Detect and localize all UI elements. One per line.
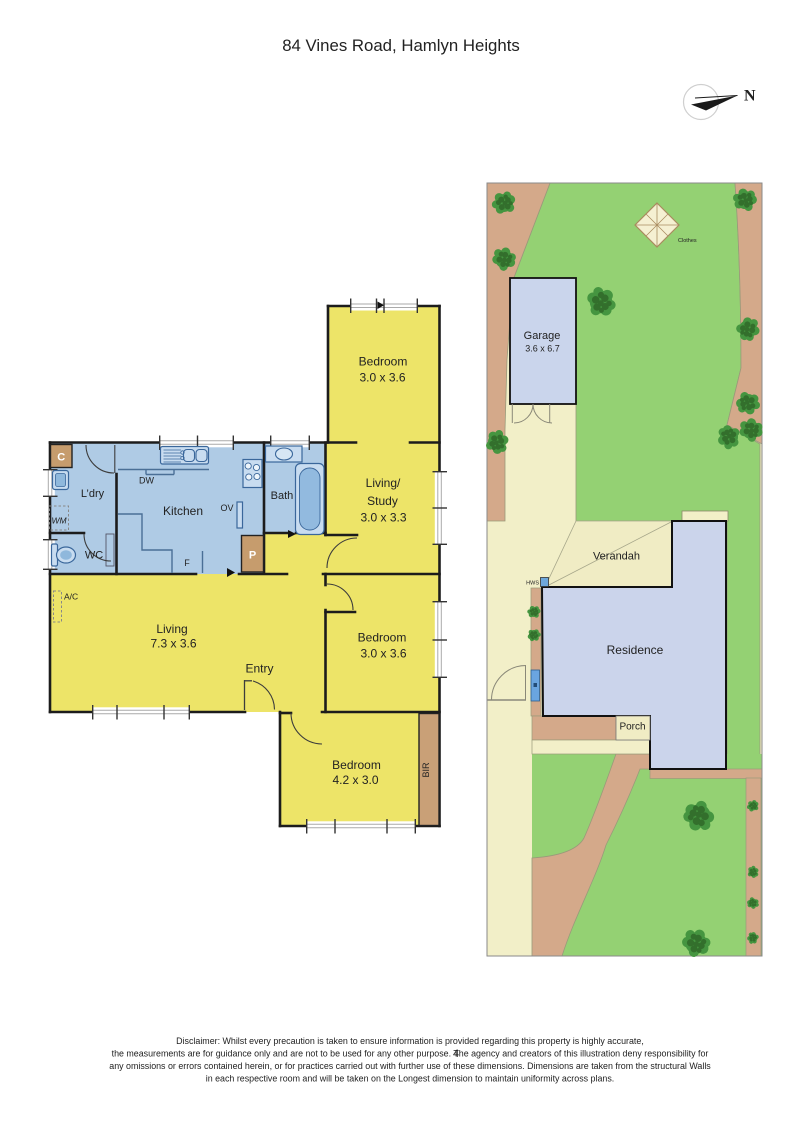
svg-text:L’dry: L’dry [81, 488, 105, 500]
svg-text:Bath: Bath [271, 490, 294, 502]
svg-text:C: C [57, 452, 65, 464]
svg-text:N: N [744, 88, 756, 105]
svg-text:WM: WM [51, 516, 67, 526]
svg-text:any omissions or errors contai: any omissions or errors contained herein… [109, 1061, 711, 1071]
svg-text:3.0 x 3.6: 3.0 x 3.6 [360, 647, 406, 661]
svg-text:BIR: BIR [421, 762, 431, 778]
svg-text:P: P [249, 550, 256, 562]
svg-text:Living: Living [156, 622, 187, 636]
svg-text:the measurements are for guida: the measurements are for guidance only a… [112, 1049, 709, 1059]
svg-text:WC: WC [85, 550, 103, 562]
svg-text:Verandah: Verandah [593, 551, 640, 563]
svg-text:Disclaimer: Whilst every preca: Disclaimer: Whilst every precaution is t… [176, 1036, 644, 1046]
svg-text:7.3 x 3.6: 7.3 x 3.6 [150, 637, 196, 651]
svg-text:A/C: A/C [64, 592, 78, 602]
svg-text:Kitchen: Kitchen [163, 504, 203, 518]
svg-text:Living/: Living/ [366, 476, 401, 490]
svg-text:Bedroom: Bedroom [332, 758, 381, 772]
svg-text:Entry: Entry [245, 662, 273, 676]
svg-text:4.2 x 3.0: 4.2 x 3.0 [332, 773, 378, 787]
svg-text:3.0 x 3.6: 3.0 x 3.6 [359, 371, 405, 385]
svg-text:3.0 x 3.3: 3.0 x 3.3 [360, 511, 406, 525]
svg-text:in each respective room and wi: in each respective room and will be take… [206, 1074, 614, 1084]
svg-text:F: F [184, 558, 190, 568]
svg-text:DW: DW [139, 476, 154, 486]
svg-text:Bedroom: Bedroom [358, 631, 407, 645]
svg-text:OV: OV [220, 503, 233, 513]
svg-text:3.6 x 6.7: 3.6 x 6.7 [525, 344, 560, 354]
svg-text:Bedroom: Bedroom [359, 355, 408, 369]
svg-text:Clothes: Clothes [678, 238, 697, 244]
svg-text:Garage: Garage [524, 330, 561, 342]
svg-text:HWS: HWS [526, 581, 539, 587]
svg-text:Porch: Porch [619, 722, 645, 733]
svg-text:Study: Study [367, 494, 398, 508]
svg-text:84 Vines Road, Hamlyn Heights: 84 Vines Road, Hamlyn Heights [282, 36, 520, 55]
svg-text:4: 4 [453, 1048, 459, 1060]
svg-text:Residence: Residence [607, 643, 664, 657]
